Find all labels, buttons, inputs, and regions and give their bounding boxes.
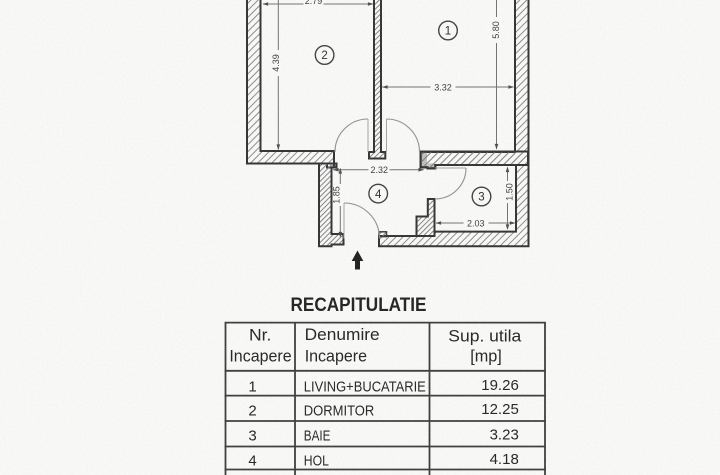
- svg-text:12.25: 12.25: [481, 401, 519, 418]
- svg-text:4.18: 4.18: [490, 451, 519, 468]
- svg-text:Nr.: Nr.: [249, 326, 271, 345]
- svg-text:4: 4: [248, 452, 256, 469]
- svg-text:DORMITOR: DORMITOR: [304, 402, 375, 419]
- svg-text:19.26: 19.26: [481, 377, 519, 394]
- svg-text:RECAPITULATIE: RECAPITULATIE: [291, 295, 427, 316]
- svg-text:2: 2: [248, 402, 256, 419]
- svg-text:2.79: 2.79: [305, 0, 323, 6]
- svg-text:3: 3: [248, 428, 256, 445]
- svg-text:4.39: 4.39: [271, 54, 281, 72]
- svg-text:3.23: 3.23: [490, 426, 519, 443]
- svg-text:2.03: 2.03: [467, 219, 485, 229]
- svg-text:1: 1: [248, 379, 256, 396]
- svg-text:Incapere: Incapere: [305, 347, 367, 366]
- svg-text:2.32: 2.32: [371, 165, 389, 175]
- svg-text:Incapere: Incapere: [229, 347, 291, 366]
- svg-text:5.80: 5.80: [491, 21, 501, 39]
- svg-text:1.85: 1.85: [332, 186, 342, 204]
- svg-text:Denumire: Denumire: [305, 325, 380, 344]
- svg-text:[mp]: [mp]: [470, 347, 502, 366]
- svg-text:2: 2: [321, 50, 327, 62]
- svg-text:LIVING+BUCATARIE: LIVING+BUCATARIE: [304, 379, 426, 396]
- svg-text:4: 4: [375, 189, 382, 201]
- svg-text:HOL: HOL: [304, 452, 329, 469]
- svg-text:1.50: 1.50: [505, 183, 515, 201]
- svg-text:3.32: 3.32: [434, 82, 452, 92]
- svg-text:3: 3: [478, 192, 484, 204]
- svg-text:Sup. utila: Sup. utila: [448, 327, 522, 346]
- svg-text:1: 1: [445, 26, 451, 38]
- svg-text:BAIE: BAIE: [304, 428, 331, 445]
